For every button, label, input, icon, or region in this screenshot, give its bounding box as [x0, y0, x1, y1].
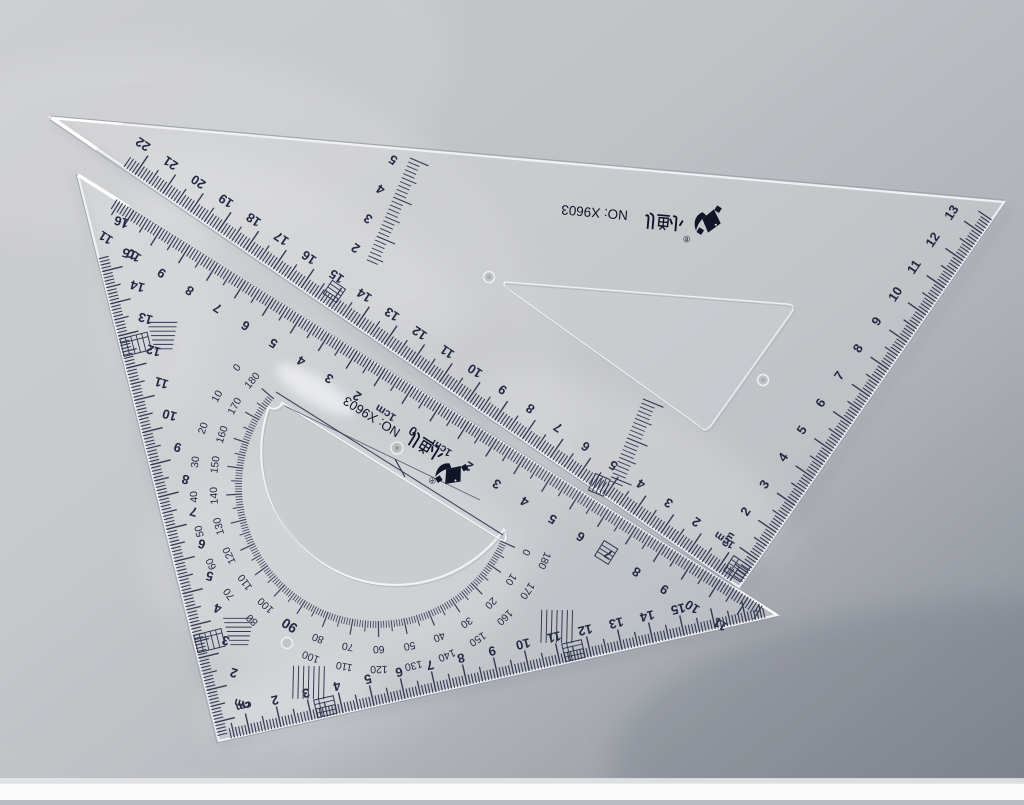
svg-text:140: 140	[208, 486, 221, 504]
svg-text:®: ®	[683, 234, 691, 245]
svg-text:120: 120	[370, 663, 388, 675]
svg-text:40: 40	[188, 491, 201, 504]
svg-text:30: 30	[189, 455, 202, 468]
svg-text:60: 60	[373, 643, 385, 655]
svg-text:70: 70	[341, 639, 355, 653]
svg-text:150: 150	[208, 455, 222, 474]
